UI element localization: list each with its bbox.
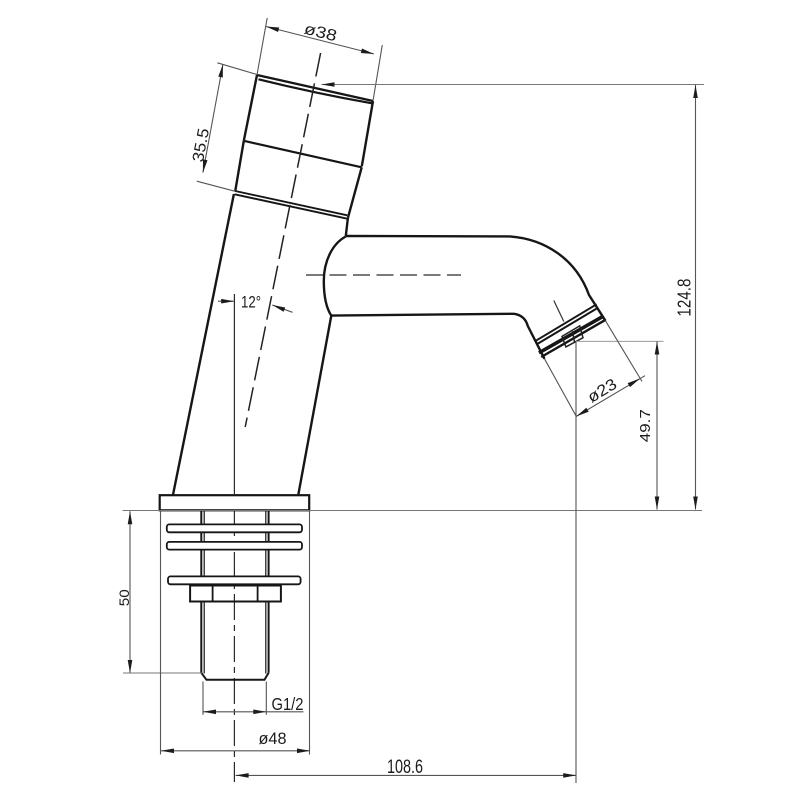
svg-text:124.8: 124.8: [675, 279, 695, 317]
svg-text:G1/2: G1/2: [272, 694, 304, 714]
svg-text:ø48: ø48: [259, 730, 287, 748]
svg-text:49.7: 49.7: [637, 409, 654, 442]
svg-text:50: 50: [117, 589, 132, 606]
svg-text:12°: 12°: [241, 293, 261, 312]
svg-text:108.6: 108.6: [387, 757, 423, 778]
